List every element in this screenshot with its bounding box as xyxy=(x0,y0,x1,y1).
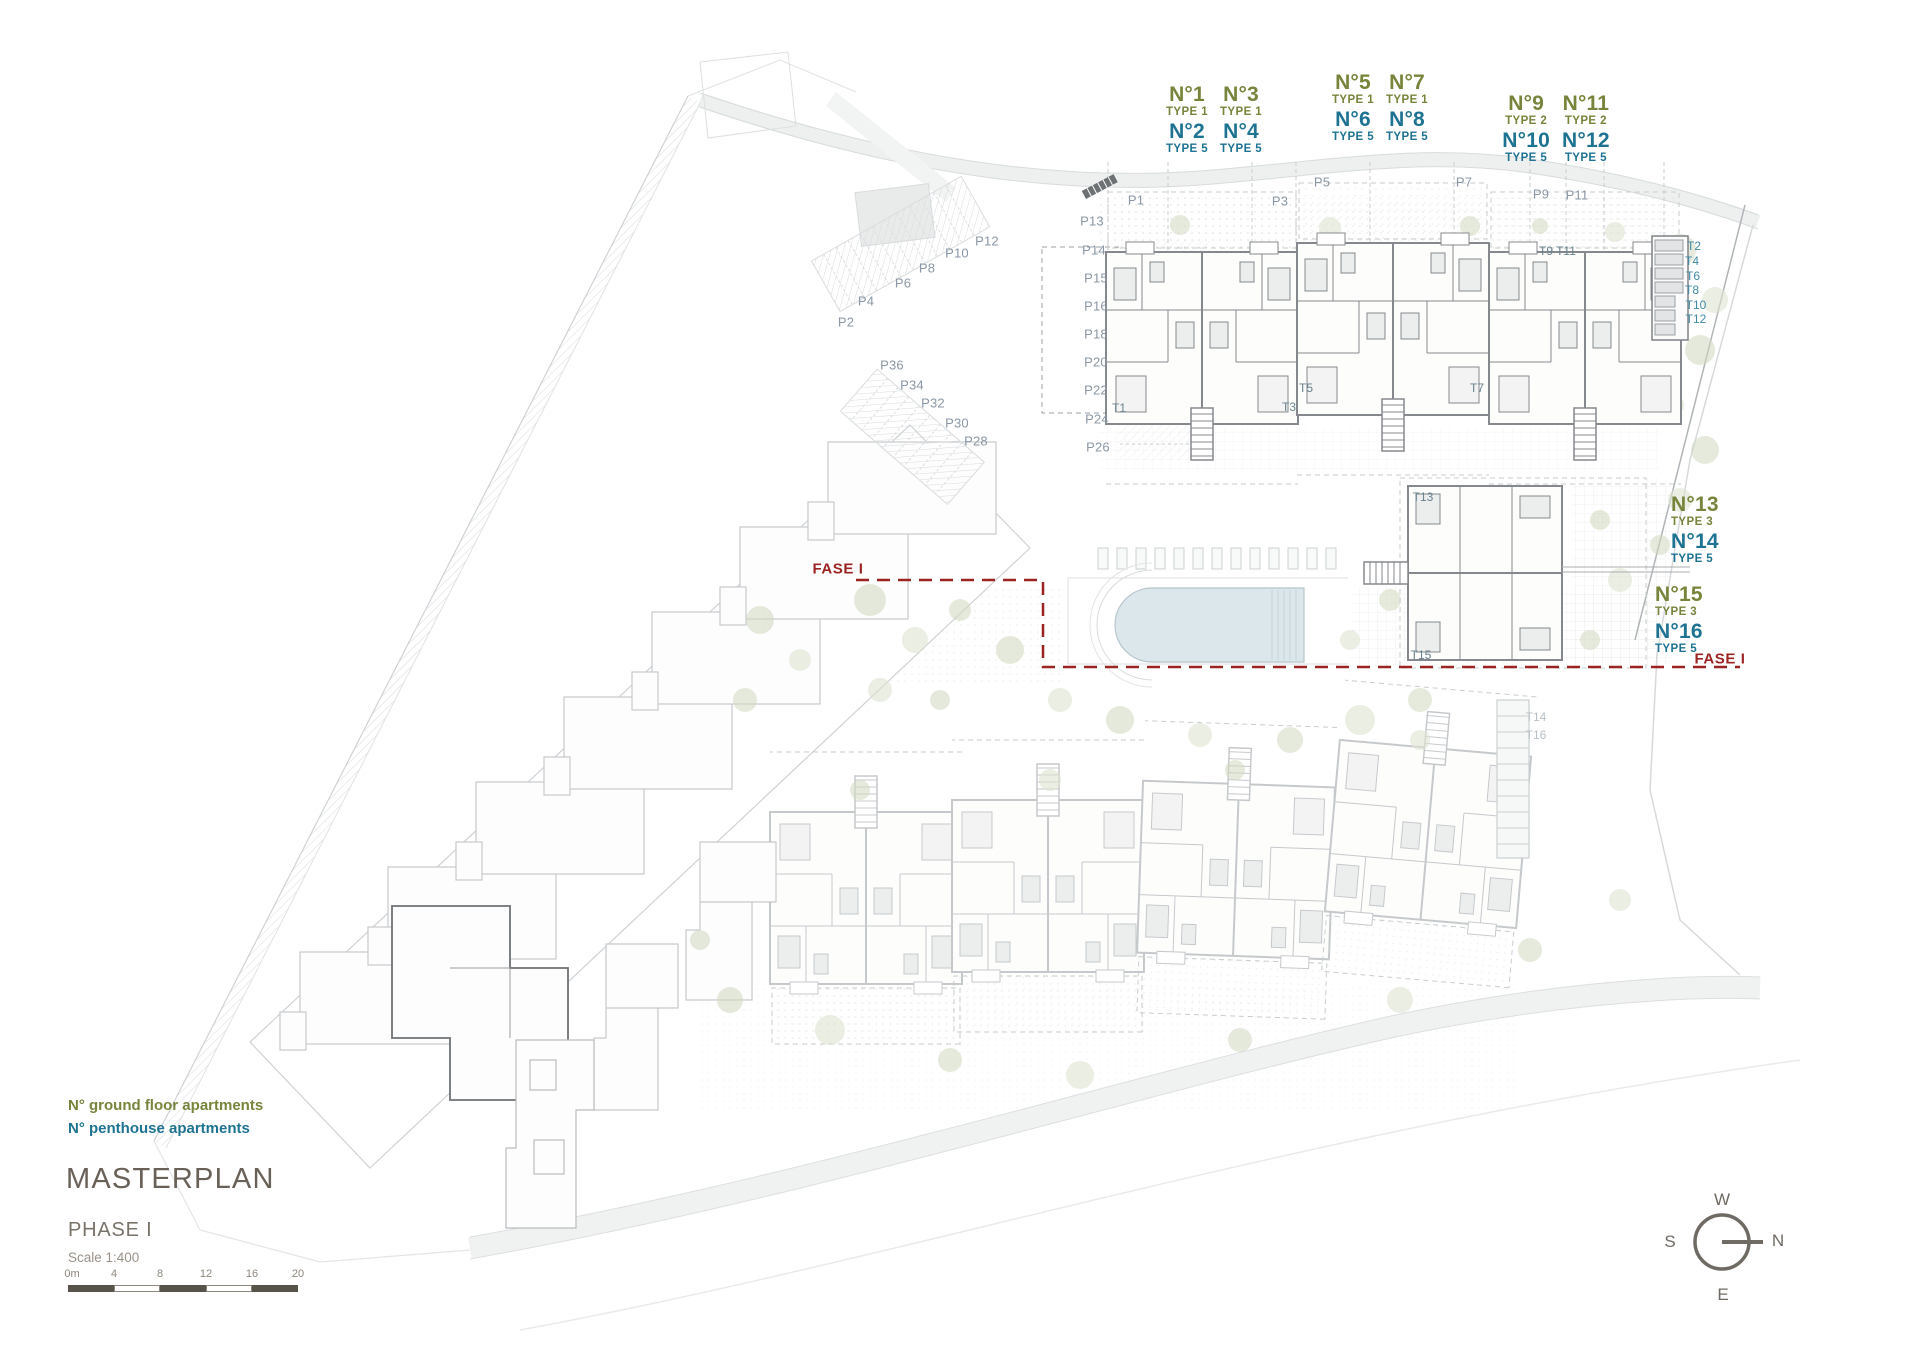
parking-label: P11 xyxy=(1566,188,1589,203)
parking-label: P1 xyxy=(1128,193,1144,208)
apartment-label: TYPE 1 xyxy=(1166,106,1208,118)
parking-label: P16 xyxy=(1084,299,1108,314)
apartment-label: N°15 xyxy=(1655,584,1703,606)
parking-label: P32 xyxy=(921,396,945,411)
compass-south-label: S xyxy=(1664,1232,1675,1252)
page-title: MASTERPLAN xyxy=(66,1163,275,1196)
apartment-label: N°13 xyxy=(1671,494,1719,516)
apartment-label: TYPE 5 xyxy=(1562,152,1610,164)
phase1-row-buildings xyxy=(1106,183,1681,484)
apartment-label: N°11 xyxy=(1562,93,1610,115)
legend-ground-floor: N° ground floor apartments xyxy=(68,1097,263,1114)
apartment-label: TYPE 2 xyxy=(1562,115,1610,127)
apartment-label: N°16 xyxy=(1655,621,1703,643)
parking-label: P30 xyxy=(945,416,969,431)
apartment-group: N°1N°3TYPE 1TYPE 1N°2N°4TYPE 5TYPE 5 xyxy=(1166,84,1262,158)
storage-label: T15 xyxy=(1411,648,1432,662)
apartment-label: N°6 xyxy=(1332,109,1374,131)
parking-label: P20 xyxy=(1084,355,1108,370)
parking-label: P13 xyxy=(1080,214,1104,229)
storage-label: T11 xyxy=(1556,244,1576,258)
parking-label: P8 xyxy=(919,261,935,276)
storage-block-top xyxy=(1652,236,1688,340)
apartment-label: TYPE 1 xyxy=(1386,94,1428,106)
parking-label: P4 xyxy=(858,294,874,309)
apartment-group: N°9N°11TYPE 2TYPE 2N°10N°12TYPE 5TYPE 5 xyxy=(1502,93,1609,167)
apartment-label: N°7 xyxy=(1386,72,1428,94)
apartment-label: TYPE 5 xyxy=(1166,143,1208,155)
parking-label: P15 xyxy=(1084,271,1108,286)
legend-penthouse: N° penthouse apartments xyxy=(68,1120,250,1137)
parking-label: P3 xyxy=(1272,194,1288,209)
scale-note: Scale 1:400 xyxy=(68,1250,139,1265)
parking-label: P28 xyxy=(964,434,988,449)
compass-east-label: E xyxy=(1717,1285,1728,1305)
parking-label: P26 xyxy=(1086,440,1110,455)
storage-label: T9 xyxy=(1539,244,1553,258)
parking-label: P36 xyxy=(880,358,904,373)
compass-west-label: W xyxy=(1714,1190,1730,1210)
storage-label: T14 xyxy=(1526,710,1547,724)
parking-label: P24 xyxy=(1085,412,1109,427)
apartment-group: N°15TYPE 3N°16TYPE 5 xyxy=(1655,584,1703,658)
parking-label: P22 xyxy=(1084,383,1108,398)
storage-label: T6 xyxy=(1686,269,1700,283)
apartment-label: TYPE 5 xyxy=(1332,131,1374,143)
apartment-label: TYPE 5 xyxy=(1220,143,1262,155)
swimming-pool xyxy=(1115,588,1304,662)
storage-label: T3 xyxy=(1282,400,1296,414)
apartment-label: N°1 xyxy=(1166,84,1208,106)
storage-label: T16 xyxy=(1526,728,1547,742)
parking-label: P2 xyxy=(838,315,854,330)
compass-north-label: N xyxy=(1772,1231,1784,1251)
parking-label: P34 xyxy=(900,378,924,393)
apartment-label: N°12 xyxy=(1562,130,1610,152)
apartment-label: N°10 xyxy=(1502,130,1550,152)
parking-label: P5 xyxy=(1314,175,1330,190)
compass-icon xyxy=(1695,1215,1763,1269)
parking-label: P10 xyxy=(945,246,969,261)
apartment-label: TYPE 5 xyxy=(1655,643,1703,655)
storage-label: T12 xyxy=(1686,312,1707,326)
parking-label: P9 xyxy=(1533,187,1549,202)
phase-boundary-label-left: FASE I xyxy=(812,561,863,578)
parking-label: P6 xyxy=(895,276,911,291)
storage-label: T2 xyxy=(1687,239,1701,253)
apartment-label: N°9 xyxy=(1502,93,1550,115)
parking-label: P14 xyxy=(1082,243,1106,258)
apartment-label: TYPE 5 xyxy=(1502,152,1550,164)
apartment-label: TYPE 5 xyxy=(1386,131,1428,143)
apartment-group: N°5N°7TYPE 1TYPE 1N°6N°8TYPE 5TYPE 5 xyxy=(1332,72,1428,146)
apartment-label: TYPE 2 xyxy=(1502,115,1550,127)
apartment-label: N°14 xyxy=(1671,531,1719,553)
site-plan-drawing xyxy=(0,0,1920,1358)
apartment-label: N°8 xyxy=(1386,109,1428,131)
masterplan-canvas: FASE I FASE I N°1N°3TYPE 1TYPE 1N°2N°4TY… xyxy=(0,0,1920,1358)
storage-label: T1 xyxy=(1112,401,1126,415)
apartment-label: TYPE 3 xyxy=(1671,516,1719,528)
apartment-group: N°13TYPE 3N°14TYPE 5 xyxy=(1671,494,1719,568)
apartment-label: TYPE 5 xyxy=(1671,553,1719,565)
phase-subtitle: PHASE I xyxy=(68,1219,153,1242)
parking-label: P7 xyxy=(1456,175,1472,190)
apartment-label: N°3 xyxy=(1220,84,1262,106)
apartment-label: N°2 xyxy=(1166,121,1208,143)
storage-label: T10 xyxy=(1686,298,1707,312)
apartment-label: N°5 xyxy=(1332,72,1374,94)
parking-label: P18 xyxy=(1084,327,1108,342)
apartment-label: TYPE 1 xyxy=(1332,94,1374,106)
storage-label: T4 xyxy=(1685,254,1699,268)
apartment-label: TYPE 3 xyxy=(1655,606,1703,618)
apartment-label: N°4 xyxy=(1220,121,1262,143)
parking-label: P12 xyxy=(975,234,999,249)
storage-label: T7 xyxy=(1470,381,1484,395)
storage-label: T8 xyxy=(1685,283,1699,297)
storage-label: T5 xyxy=(1299,381,1313,395)
apartment-label: TYPE 1 xyxy=(1220,106,1262,118)
storage-label: T13 xyxy=(1413,490,1434,504)
